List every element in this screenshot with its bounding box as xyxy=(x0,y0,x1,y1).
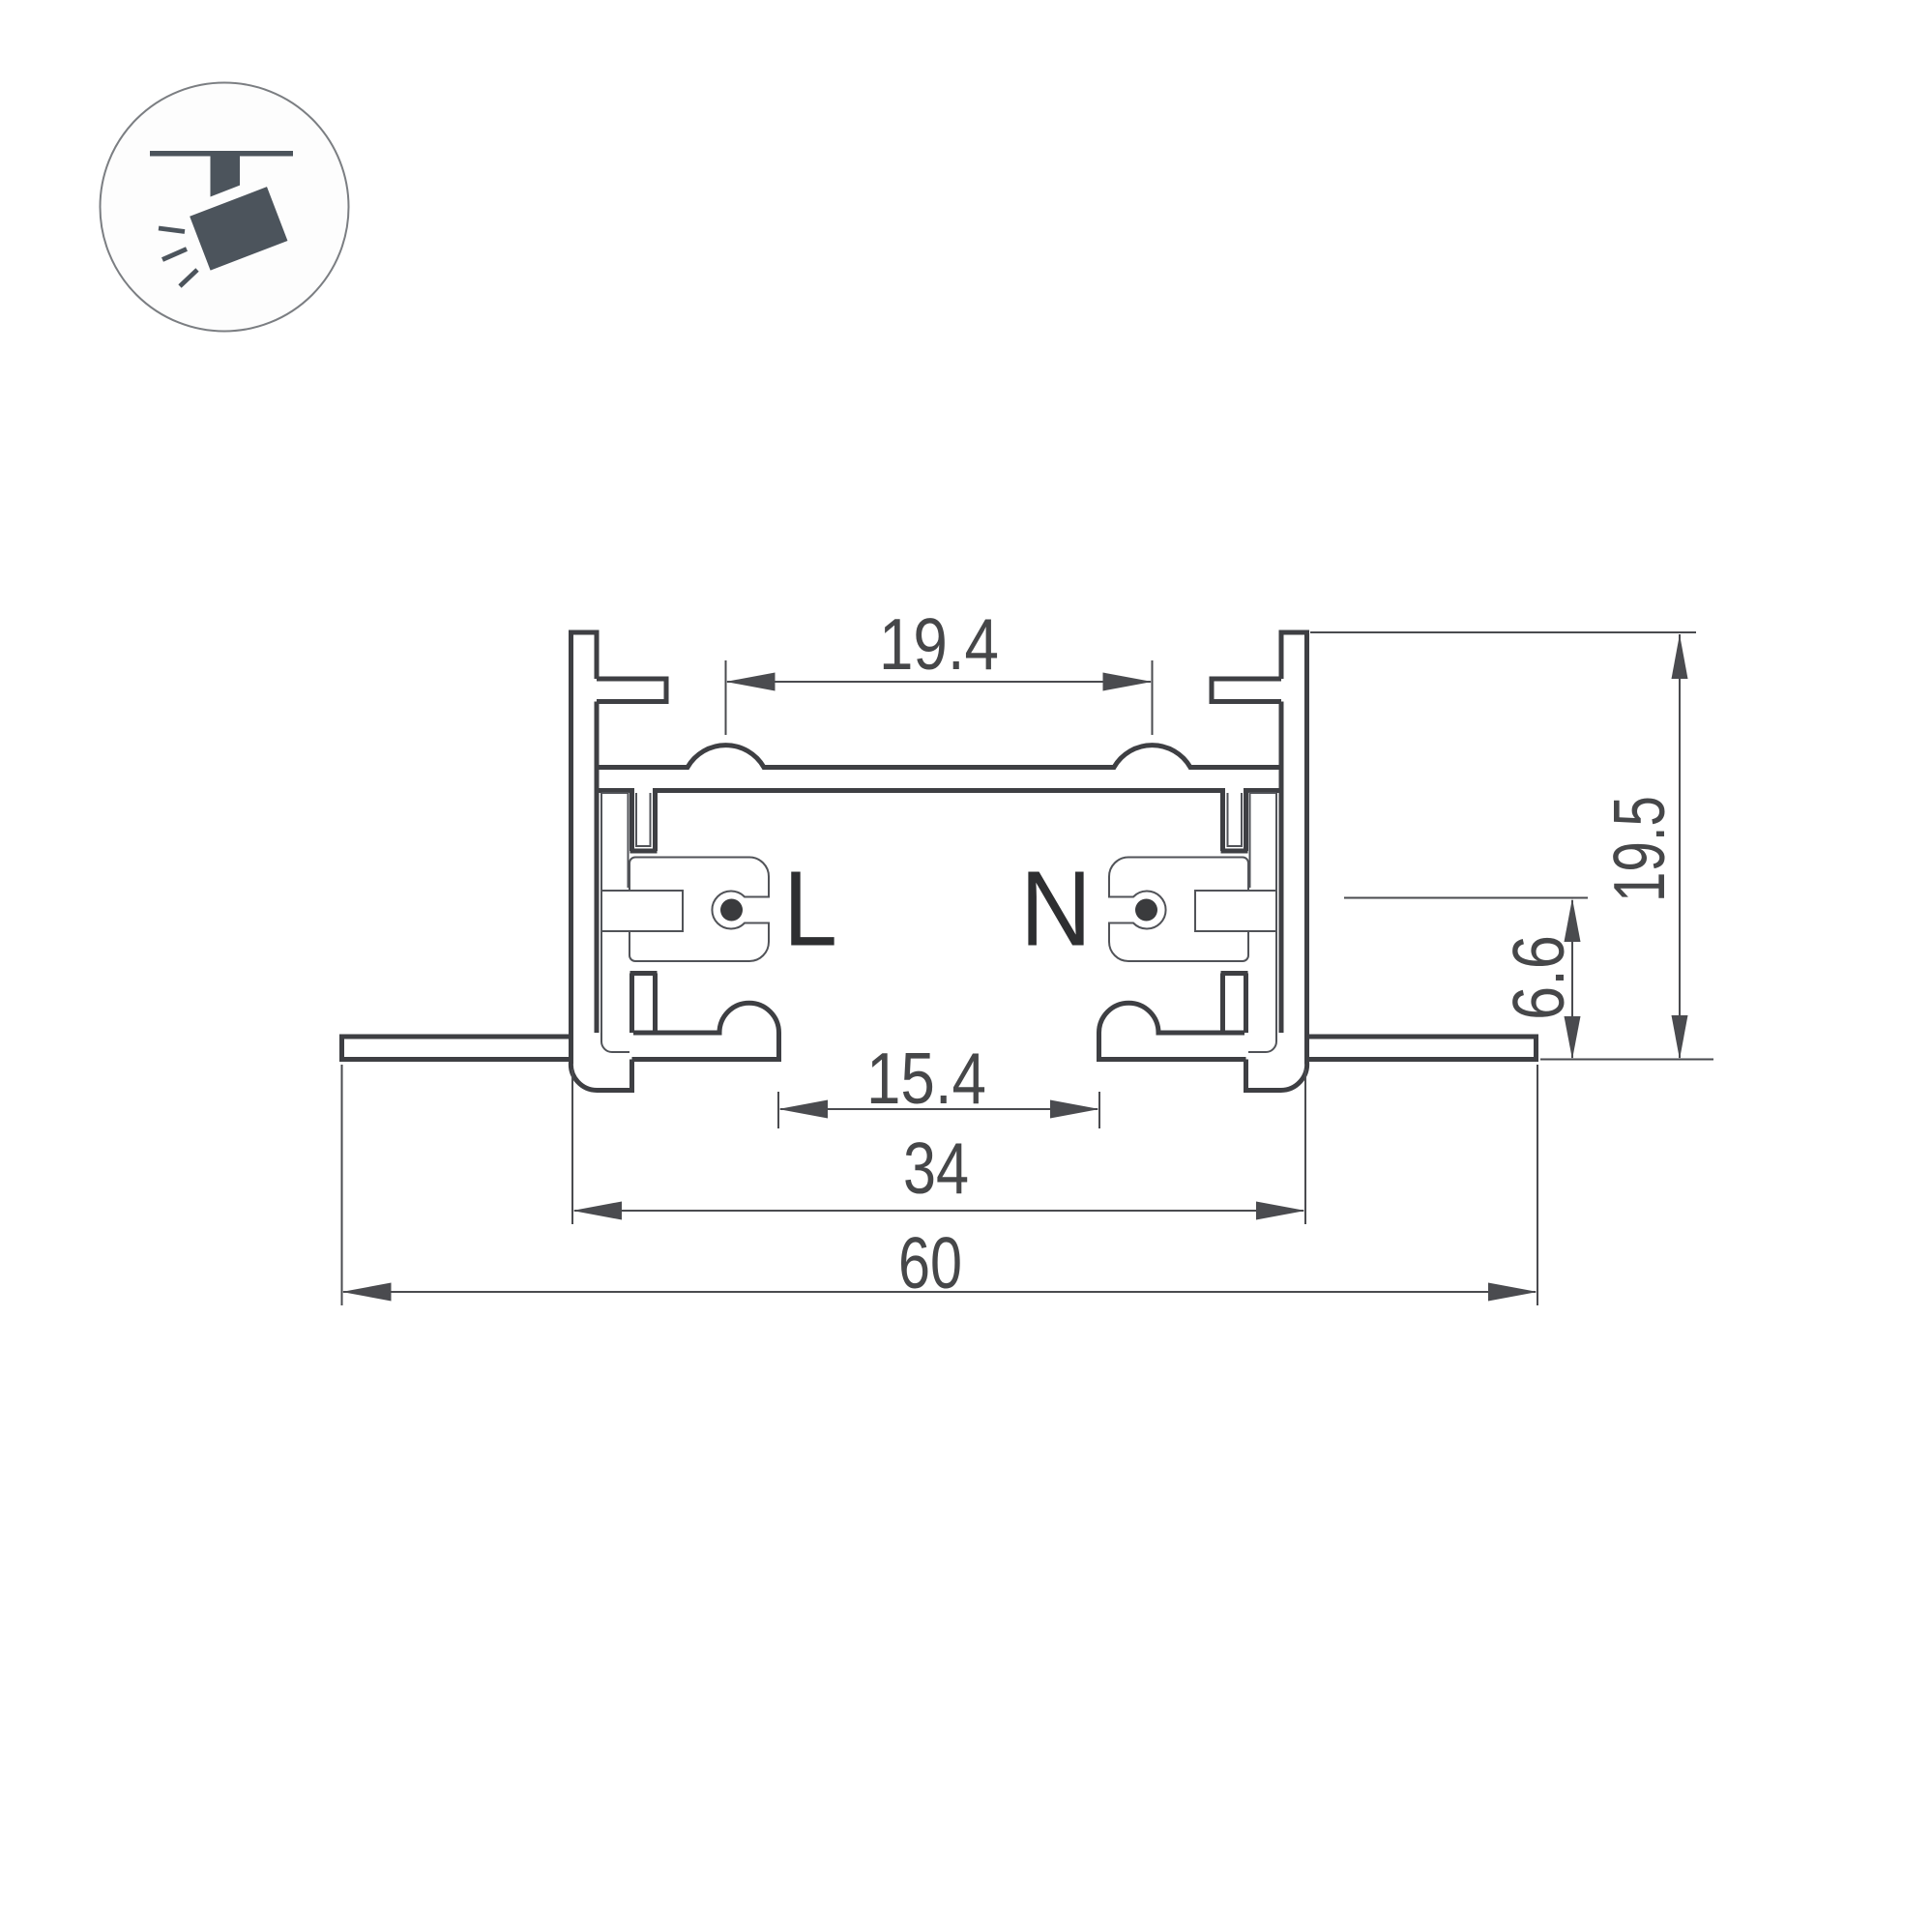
svg-text:N: N xyxy=(1020,850,1092,969)
svg-text:15.4: 15.4 xyxy=(866,1038,986,1119)
svg-text:19.4: 19.4 xyxy=(879,603,999,685)
svg-text:60: 60 xyxy=(898,1222,962,1303)
svg-text:19.5: 19.5 xyxy=(1598,796,1680,902)
svg-text:L: L xyxy=(783,850,837,969)
svg-text:34: 34 xyxy=(903,1127,969,1209)
svg-text:6.6: 6.6 xyxy=(1498,935,1579,1020)
